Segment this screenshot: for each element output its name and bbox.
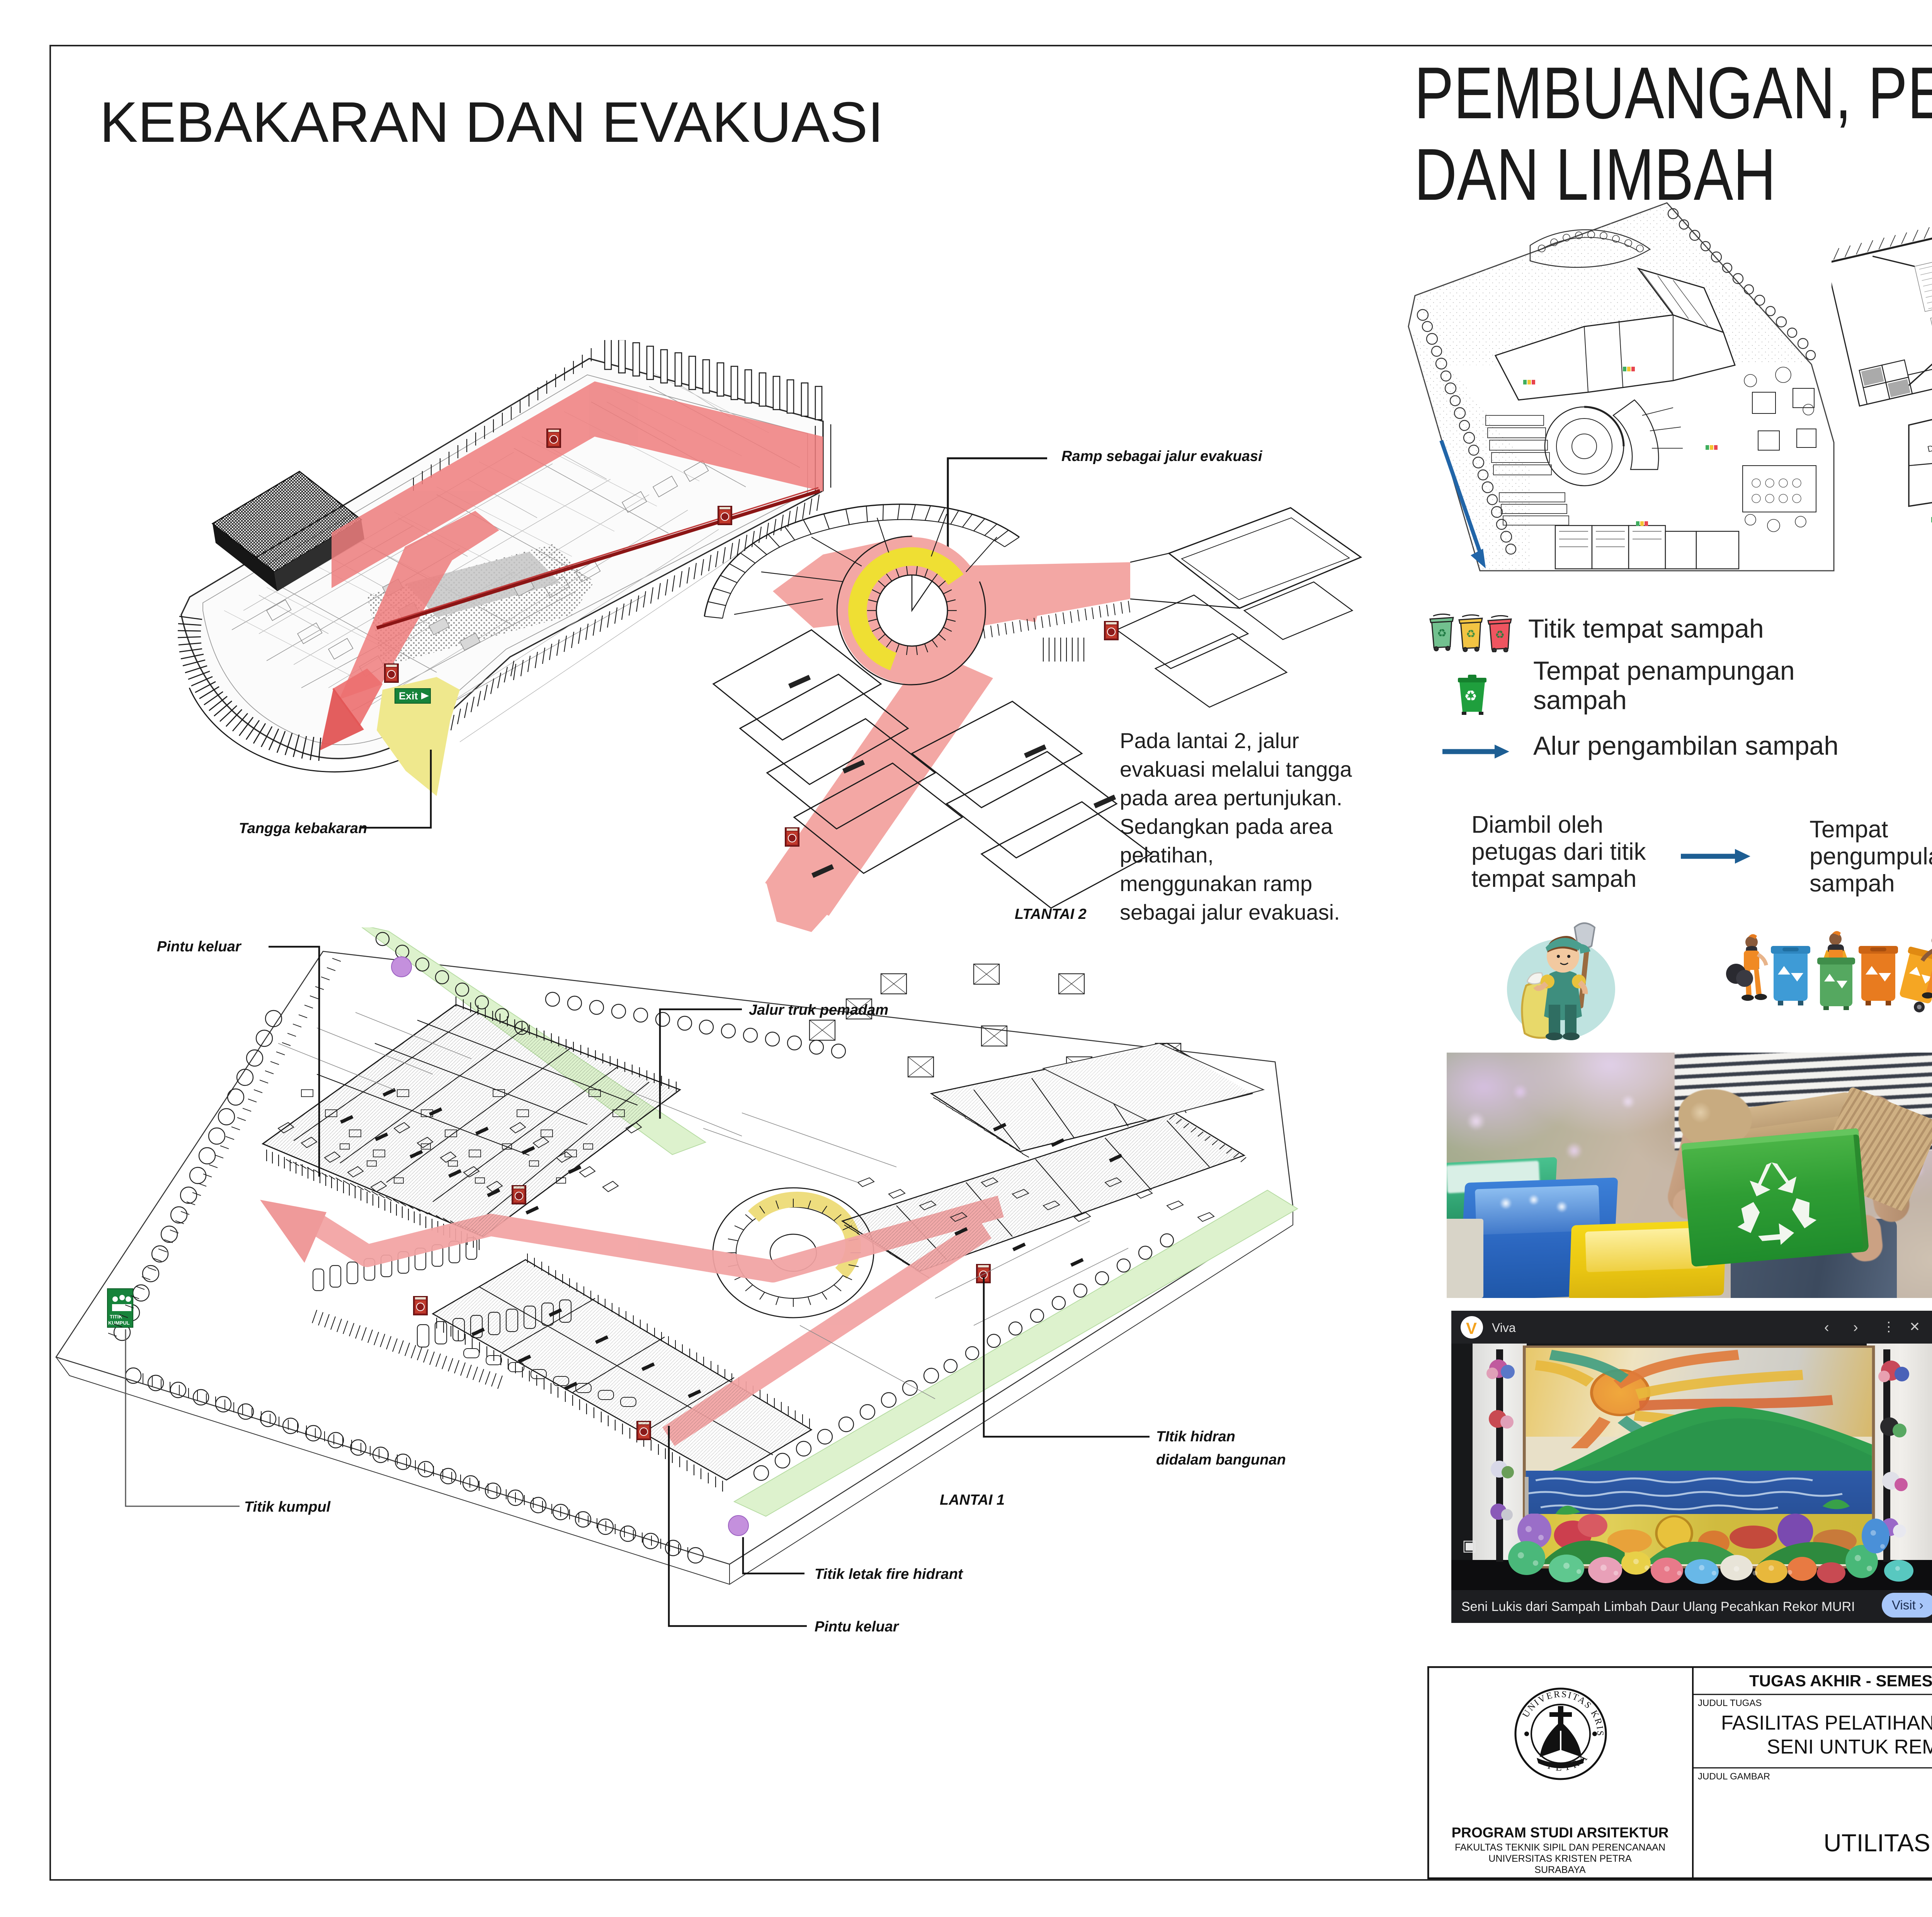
svg-text:Titik letak fire hidrant: Titik letak fire hidrant [815,1566,963,1582]
svg-text:didalam bangunan: didalam bangunan [1156,1452,1286,1468]
svg-text:♻: ♻ [1495,629,1505,641]
svg-text:Exit: Exit [399,690,418,702]
svg-text:Jalur truk pemadam: Jalur truk pemadam [749,1002,888,1018]
svg-text:LANTAI 1: LANTAI 1 [940,1492,1005,1508]
svg-text:♻: ♻ [1466,628,1476,640]
svg-text:LTANTAI 2: LTANTAI 2 [1015,906,1087,922]
svg-text:Dance: Dance [1927,439,1932,454]
svg-text:Pintu keluar: Pintu keluar [157,939,242,955]
svg-text:Titik kumpul: Titik kumpul [244,1499,331,1515]
svg-text:♻: ♻ [1464,688,1477,704]
svg-text:TItik hidran: TItik hidran [1156,1429,1235,1445]
svg-text:KUMPUL: KUMPUL [108,1320,130,1326]
svg-text:PETRA: PETRA [1546,1750,1592,1773]
svg-text:♻: ♻ [1437,627,1447,639]
svg-text:Pintu keluar: Pintu keluar [815,1619,900,1635]
svg-text:Tangga kebakaran: Tangga kebakaran [239,820,367,837]
